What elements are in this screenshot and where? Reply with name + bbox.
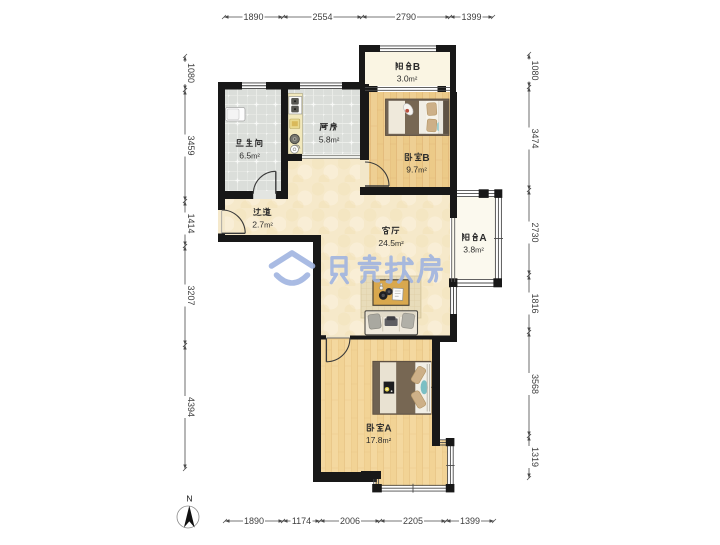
svg-text:A: A [479, 233, 486, 244]
svg-text:1080: 1080 [186, 63, 196, 83]
svg-text:N: N [186, 494, 192, 504]
svg-text:A: A [384, 423, 391, 434]
svg-text:3.8m²: 3.8m² [463, 244, 484, 254]
svg-text:2.7m²: 2.7m² [252, 219, 273, 229]
svg-text:5.8m²: 5.8m² [319, 134, 340, 144]
svg-text:B: B [422, 153, 429, 164]
svg-text:24.5m²: 24.5m² [378, 238, 404, 248]
svg-text:1890: 1890 [244, 516, 264, 526]
svg-text:2554: 2554 [312, 12, 332, 22]
svg-text:1174: 1174 [292, 516, 311, 526]
svg-text:1414: 1414 [186, 213, 196, 233]
svg-text:4394: 4394 [186, 397, 196, 417]
svg-text:1399: 1399 [461, 12, 481, 22]
svg-text:1890: 1890 [243, 12, 263, 22]
svg-text:3474: 3474 [530, 128, 540, 148]
svg-text:2205: 2205 [403, 516, 423, 526]
svg-text:3459: 3459 [186, 135, 196, 155]
svg-text:1816: 1816 [530, 293, 540, 313]
svg-text:3207: 3207 [186, 285, 196, 305]
svg-text:1080: 1080 [530, 60, 540, 80]
svg-text:B: B [413, 62, 420, 73]
svg-text:1319: 1319 [530, 447, 540, 467]
svg-text:6.5m²: 6.5m² [239, 150, 260, 160]
svg-text:2006: 2006 [340, 516, 360, 526]
svg-text:3.0m²: 3.0m² [397, 73, 418, 83]
svg-text:1399: 1399 [460, 516, 480, 526]
svg-text:9.7m²: 9.7m² [406, 164, 427, 174]
svg-text:17.8m²: 17.8m² [366, 435, 392, 445]
svg-text:2730: 2730 [530, 222, 540, 242]
svg-text:3568: 3568 [530, 374, 540, 394]
svg-text:2790: 2790 [396, 12, 416, 22]
